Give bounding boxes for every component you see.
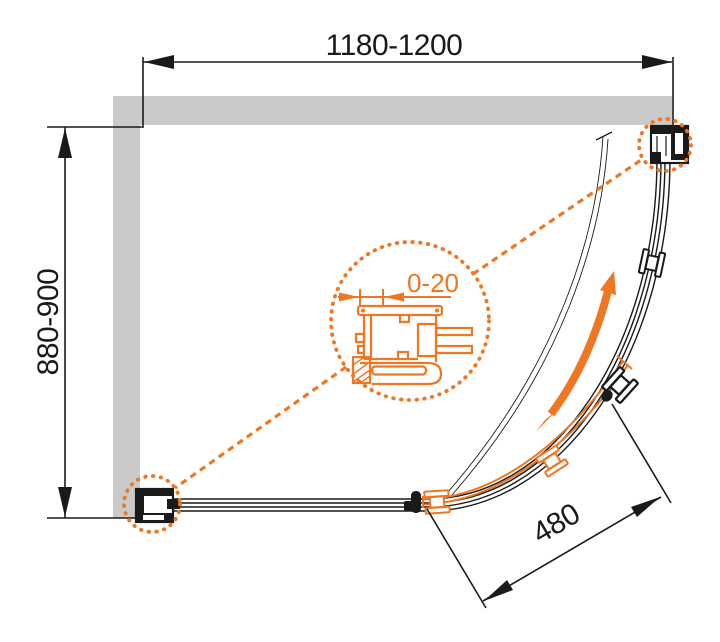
arrowhead (339, 293, 359, 302)
opening-dimension (427, 404, 671, 608)
arrowhead-up (600, 271, 616, 295)
width-dimension-label: 1180-1200 (326, 29, 463, 62)
door-open-position-arc (448, 132, 612, 495)
arrowhead (384, 293, 404, 302)
extension-line (427, 509, 486, 608)
arrowhead (631, 497, 660, 517)
opening-dimension-label: 480 (527, 497, 586, 550)
arrowhead-right (642, 55, 672, 69)
extension-line (612, 404, 671, 503)
adjustment-dimension-label: 0-20 (407, 268, 459, 298)
profile-cross-section-detail (353, 306, 472, 384)
left-wall (113, 96, 140, 518)
door-slide-arrow (536, 271, 616, 432)
diagram-canvas: 1180-1200 880-900 (0, 0, 720, 642)
top-wall (113, 96, 672, 125)
arrowhead-left (144, 55, 174, 69)
arrowhead-top (58, 128, 72, 158)
wall-profile-top-right (651, 126, 688, 163)
door-handle (404, 491, 421, 513)
shower-enclosure-drawing: 1180-1200 880-900 (0, 0, 720, 642)
depth-dimension-label: 880-900 (32, 269, 65, 376)
wall-profile-bottom-left (136, 489, 180, 522)
arrowhead-down (536, 410, 557, 432)
arrowhead-bottom (58, 487, 72, 517)
arrowhead (484, 580, 513, 601)
arc-end-cap (596, 132, 612, 140)
detail-callout-circles (124, 119, 691, 532)
